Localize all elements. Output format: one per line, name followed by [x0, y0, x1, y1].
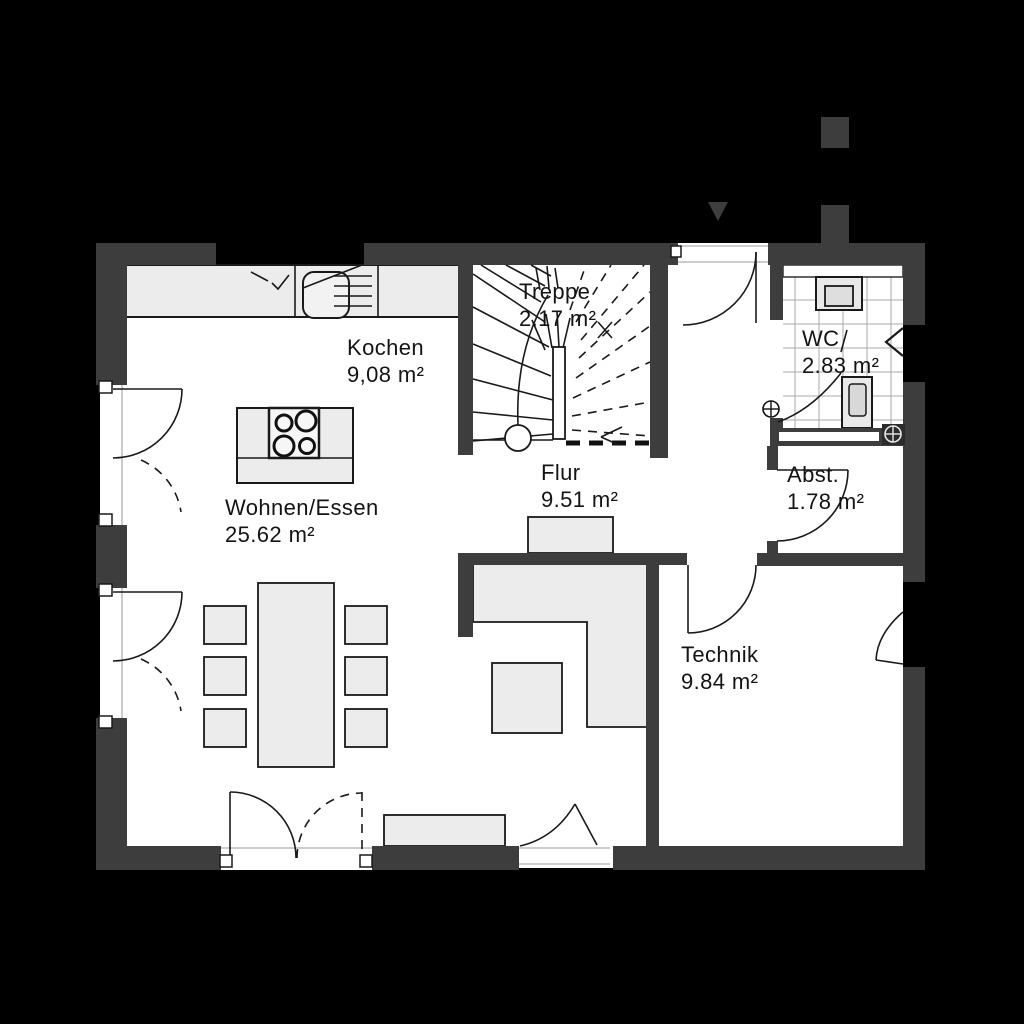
wall-segment — [613, 846, 925, 870]
chair — [345, 606, 387, 644]
wall-segment — [650, 265, 668, 458]
drain-symbol — [763, 401, 779, 417]
wall-segment — [903, 382, 925, 582]
wall-segment — [646, 565, 659, 846]
chair — [204, 657, 246, 695]
room-label-flur: Flur 9.51 m² — [541, 459, 618, 513]
wall-segment — [770, 265, 783, 320]
wall-segment — [768, 243, 925, 265]
room-area: 9,08 m² — [347, 361, 424, 388]
room-name: Kochen — [347, 334, 424, 361]
room-label-wohnen-essen: Wohnen/Essen 25.62 m² — [225, 494, 379, 548]
room-area: 2.83 m² — [802, 352, 879, 379]
room-area: 1.78 m² — [787, 488, 864, 515]
wall-segment — [96, 525, 127, 588]
chair — [204, 606, 246, 644]
room-area: 25.62 m² — [225, 521, 379, 548]
room-area: 9.84 m² — [681, 668, 758, 695]
room-name: Abst. — [787, 461, 864, 488]
wc-ledge — [779, 432, 879, 441]
wall-segment — [903, 667, 925, 870]
wall-segment — [458, 265, 473, 455]
wall-segment — [767, 446, 778, 470]
wall-segment — [364, 243, 678, 265]
stair-start-post — [505, 425, 531, 451]
stair-newel — [553, 347, 565, 439]
room-name: Wohnen/Essen — [225, 494, 379, 521]
wall-segment — [96, 846, 221, 870]
floor-plan-drawing — [0, 0, 1024, 1024]
kitchen-counter — [103, 256, 459, 318]
room-label-abst: Abst. 1.78 m² — [787, 461, 864, 515]
room-area: 9.51 m² — [541, 486, 618, 513]
toilet — [842, 377, 872, 428]
wall-segment — [767, 541, 778, 553]
chair — [345, 709, 387, 747]
wall-segment — [372, 846, 519, 870]
wall-segment — [903, 243, 925, 325]
wall-segment — [458, 553, 687, 565]
wall-segment — [96, 243, 127, 385]
drain-symbol — [882, 424, 905, 445]
room-name: Treppe — [519, 278, 596, 305]
chair — [345, 657, 387, 695]
room-name: Flur — [541, 459, 618, 486]
room-label-treppe: Treppe 2.17 m² — [519, 278, 596, 332]
wc-shelf — [783, 265, 903, 277]
wall-segment — [757, 553, 905, 566]
wall-segment — [458, 553, 473, 637]
room-label-wc: WC 2.83 m² — [802, 325, 879, 379]
entrance-arrow-icon — [708, 202, 728, 221]
room-label-technik: Technik 9.84 m² — [681, 641, 758, 695]
kitchen-island — [237, 408, 353, 483]
floor-plan: Kochen 9,08 m² Treppe 2.17 m² WC 2.83 m²… — [0, 0, 1024, 1024]
room-name: Technik — [681, 641, 758, 668]
room-area: 2.17 m² — [519, 305, 596, 332]
dining-table — [258, 583, 334, 767]
chair — [204, 709, 246, 747]
chimney-block — [821, 205, 849, 243]
coffee-table — [492, 663, 562, 733]
hall-wardrobe — [528, 517, 613, 553]
sideboard — [384, 815, 505, 846]
washbasin — [816, 277, 862, 310]
room-name: WC — [802, 325, 879, 352]
chimney-block — [821, 117, 849, 148]
room-label-kochen: Kochen 9,08 m² — [347, 334, 424, 388]
